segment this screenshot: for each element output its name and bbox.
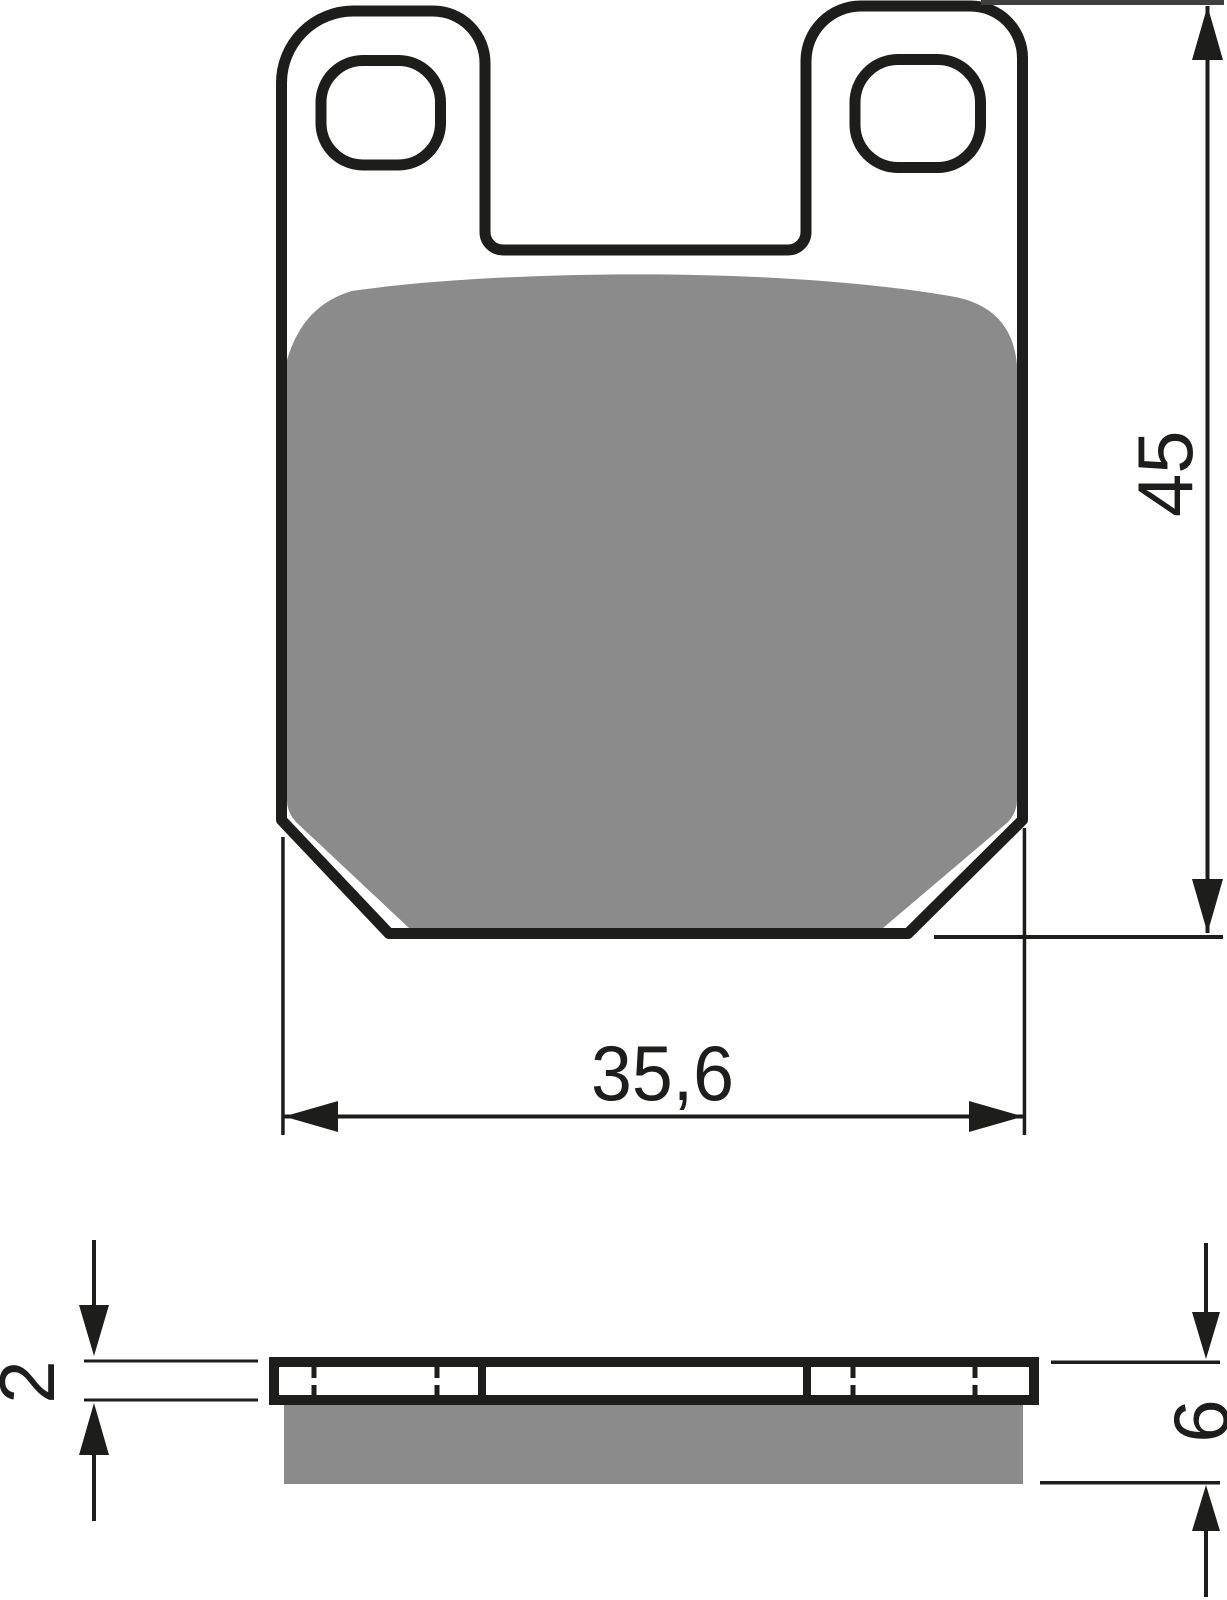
svg-text:45: 45 bbox=[1121, 431, 1209, 518]
svg-text:2: 2 bbox=[0, 1360, 71, 1403]
svg-text:35,6: 35,6 bbox=[591, 1029, 734, 1117]
svg-text:6: 6 bbox=[1157, 1399, 1227, 1442]
